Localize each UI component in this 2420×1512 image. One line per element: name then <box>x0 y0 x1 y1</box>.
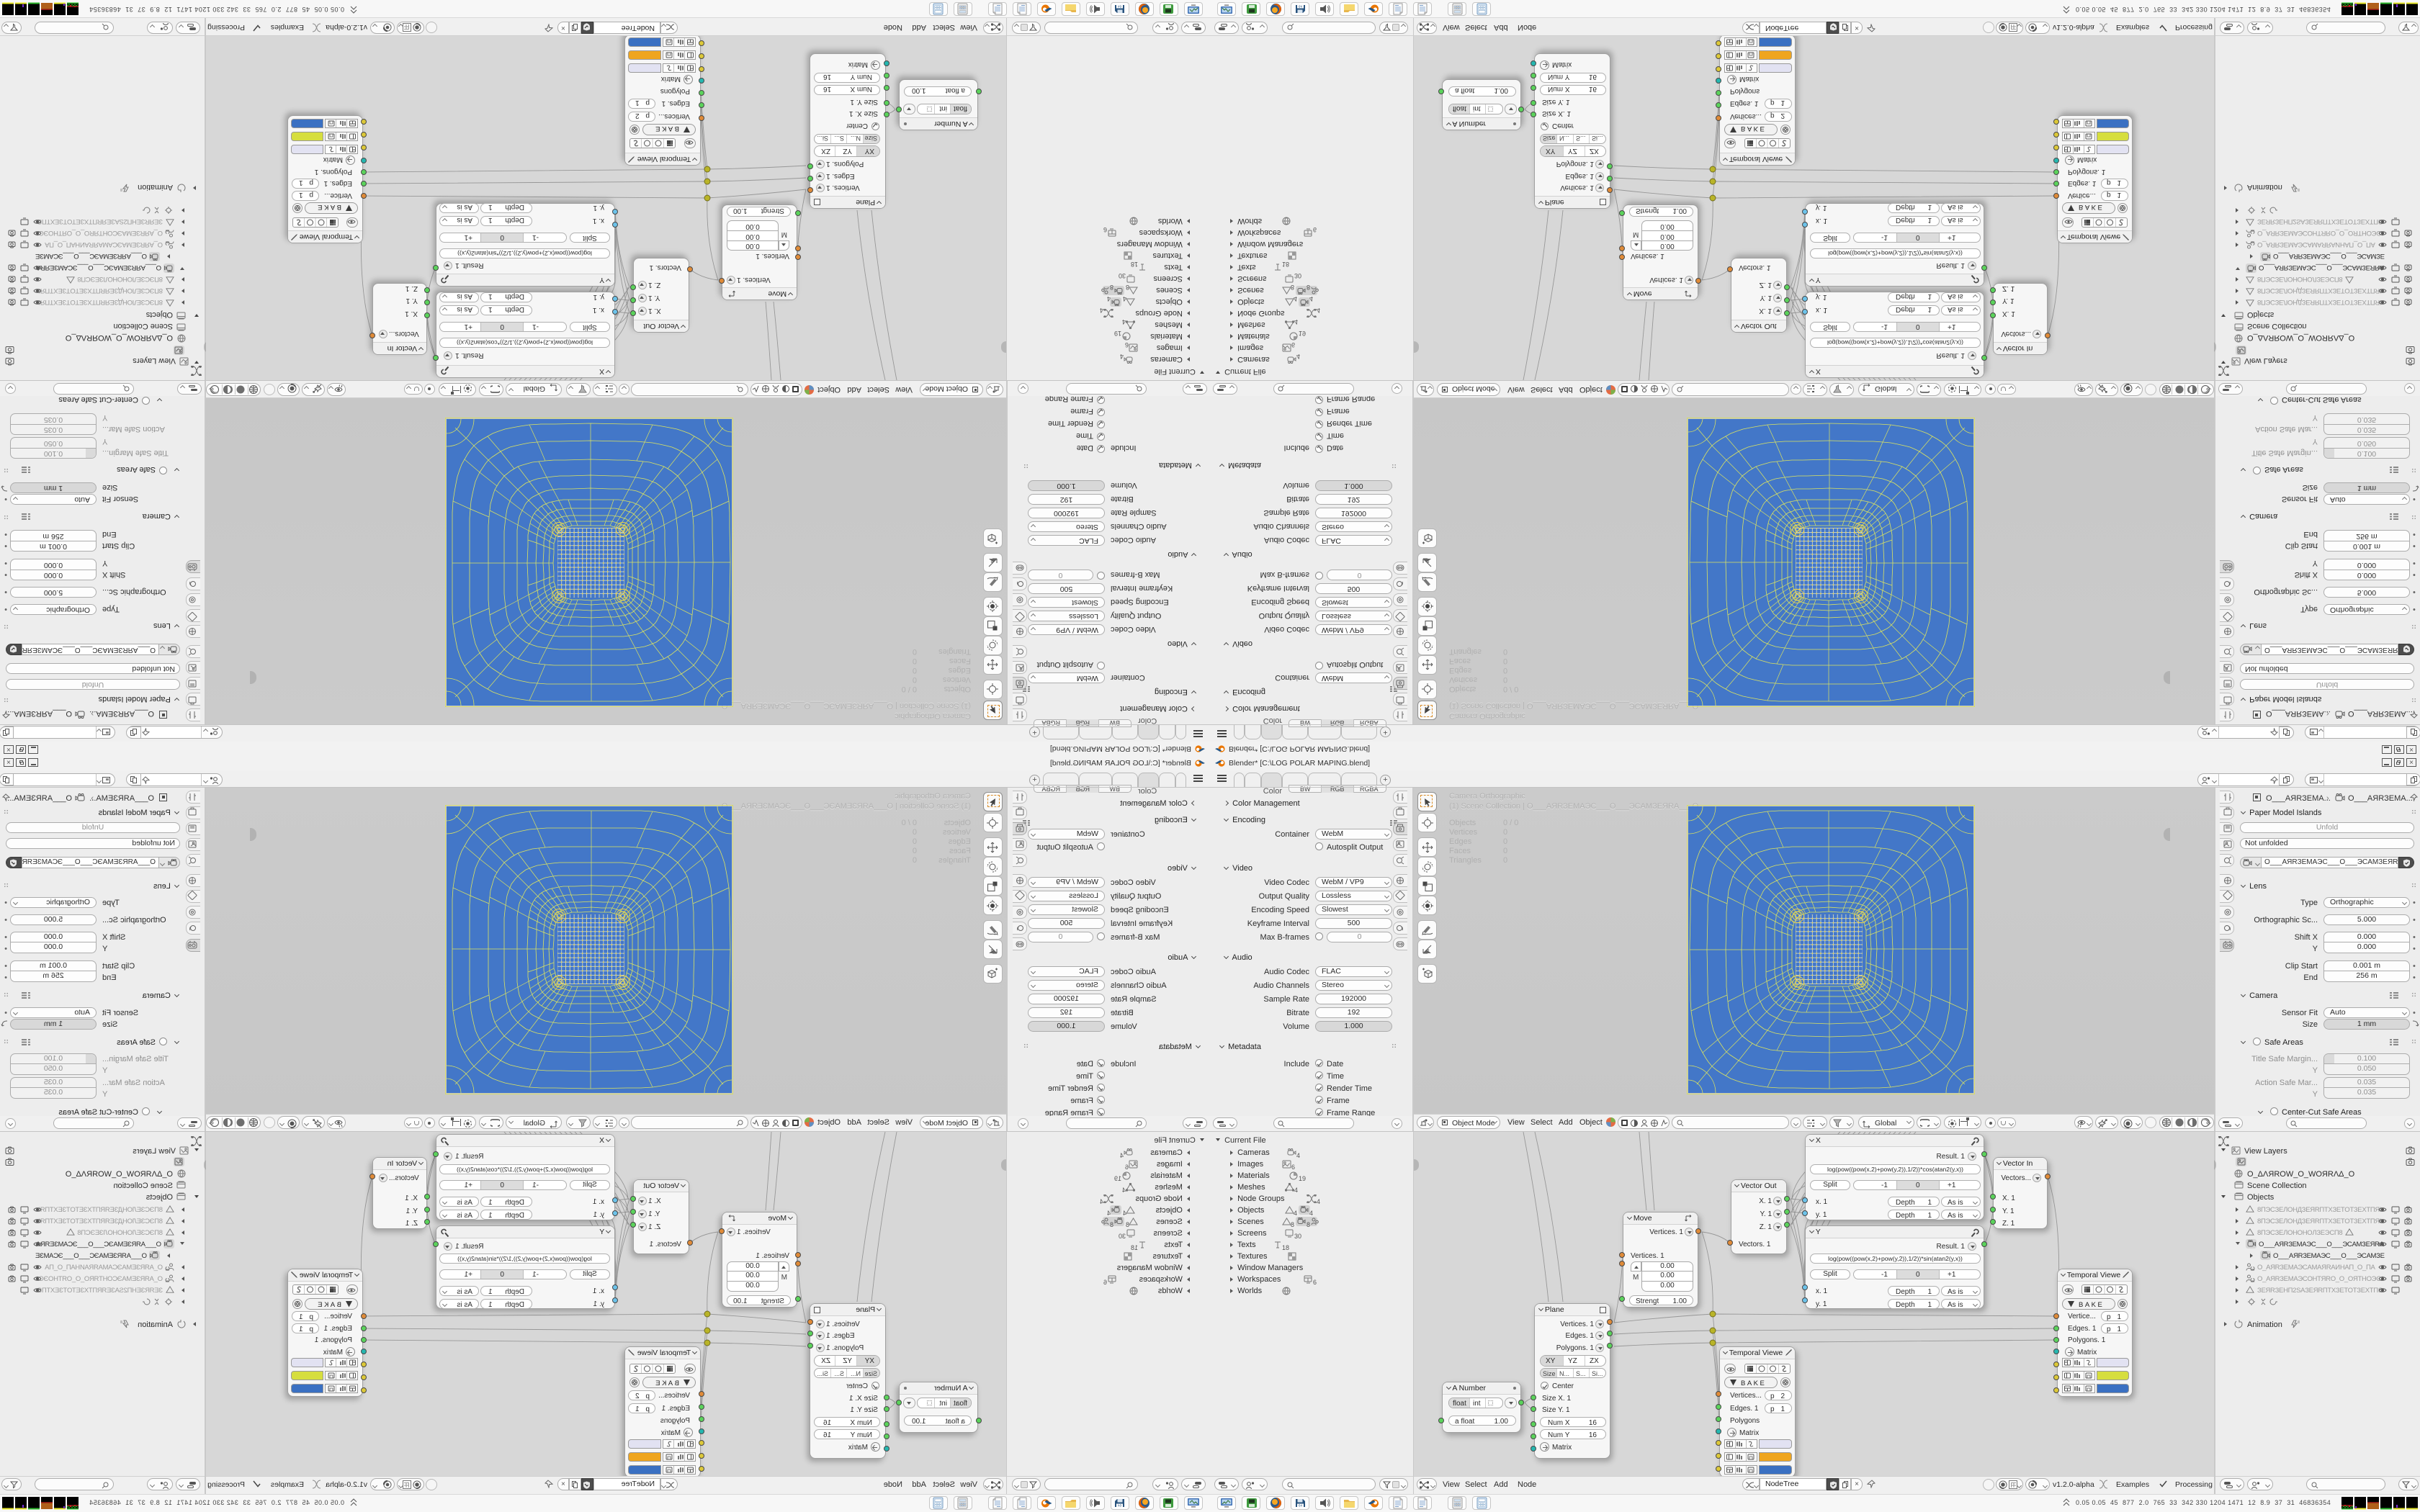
svg-text:64: 64 <box>1299 5 1303 9</box>
svg-text:64: 64 <box>1299 1504 1303 1508</box>
svg-text:64: 64 <box>1118 1504 1122 1508</box>
svg-text:64: 64 <box>1118 5 1122 9</box>
